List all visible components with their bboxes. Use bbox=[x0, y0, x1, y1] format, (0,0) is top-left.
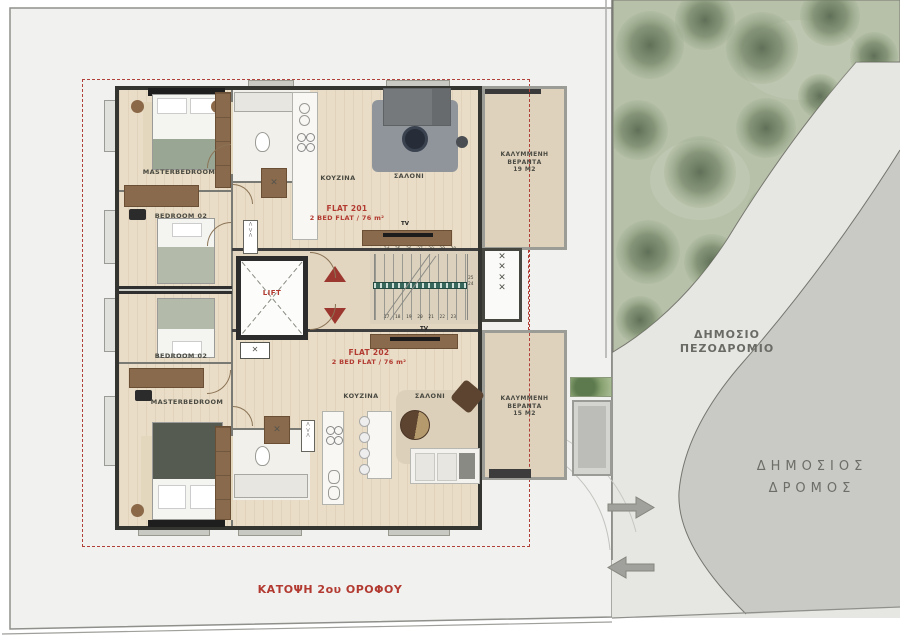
sink bbox=[328, 486, 340, 500]
shaft-hatch: ✕ bbox=[241, 343, 269, 357]
party-wall bbox=[119, 286, 232, 294]
duct-shaft: ⋀⋁⋀ bbox=[301, 420, 315, 452]
tree-canopy bbox=[608, 100, 668, 160]
veranda-201-label: ΚΑΛΥΜΜΕΝΗ ΒΕΡΑΝΤΑ 19 M2 bbox=[485, 151, 564, 174]
blanket bbox=[158, 247, 214, 283]
tv-screen bbox=[383, 233, 433, 237]
veranda-201-line1: ΚΑΛΥΜΜΕΝΗ bbox=[485, 151, 564, 159]
veranda-202-line2: ΒΕΡΑΝΤΑ bbox=[485, 403, 564, 411]
round-table bbox=[400, 410, 430, 440]
blanket bbox=[158, 299, 214, 329]
living-202-label: ΣΑΛΟΝΙ bbox=[400, 392, 460, 400]
stove-burner bbox=[334, 426, 343, 435]
pillow bbox=[157, 98, 187, 114]
master-bed-202 bbox=[152, 422, 223, 520]
sheet-title: ΚΑΤΟΨΗ 2ου ΟΡΟΦΟΥ bbox=[230, 583, 430, 596]
stove-burner bbox=[297, 143, 306, 152]
veranda-flat-201: ΚΑΛΥΜΜΕΝΗ ΒΕΡΑΝΤΑ 19 M2 bbox=[482, 86, 567, 250]
flat-201-name: FLAT 201 bbox=[282, 204, 412, 214]
projection-dashed-line bbox=[528, 250, 529, 330]
stair-break-line bbox=[370, 248, 478, 324]
tv-console-202 bbox=[370, 334, 458, 349]
veranda-flat-202: ΚΑΛΥΜΜΕΝΗ ΒΕΡΑΝΤΑ 15 M2 bbox=[482, 330, 567, 480]
veranda-202-line3: 15 M2 bbox=[485, 410, 564, 418]
veranda-202-label: ΚΑΛΥΜΜΕΝΗ ΒΕΡΑΝΤΑ 15 M2 bbox=[485, 395, 564, 418]
flat-201-label: FLAT 201 2 BED FLAT / 76 m² bbox=[282, 204, 412, 223]
door-arc bbox=[233, 406, 253, 426]
bar-stool bbox=[359, 416, 370, 427]
cabinet-hatch: ✕ bbox=[262, 169, 286, 197]
planter-green bbox=[570, 377, 612, 397]
cabinet-hatch: ✕ bbox=[265, 417, 289, 443]
coffee-table bbox=[402, 126, 428, 152]
flat-202-name: FLAT 202 bbox=[304, 348, 434, 358]
veranda-201-line2: ΒΕΡΑΝΤΑ bbox=[485, 159, 564, 167]
master-201-label: MASTERBEDROOM bbox=[139, 168, 219, 176]
tv-screen bbox=[390, 337, 440, 341]
desk bbox=[129, 368, 204, 388]
duct-shaft: ⋀⋁⋀ bbox=[243, 220, 258, 254]
building-floor-plan: MASTERBEDROOM BEDROOM 02 ✕ ⋀⋁⋀ KOYZINA bbox=[115, 86, 482, 530]
stove-burner bbox=[334, 436, 343, 445]
interior-wall bbox=[119, 362, 232, 364]
tv-202-label: TV bbox=[414, 326, 434, 334]
door-arc bbox=[207, 370, 231, 394]
tree-canopy bbox=[664, 136, 736, 208]
pillow bbox=[190, 485, 218, 509]
stove-burner bbox=[297, 133, 306, 142]
utility-panel-inner bbox=[578, 406, 606, 468]
sofa-202 bbox=[410, 448, 480, 484]
sink bbox=[299, 103, 310, 114]
planter-box bbox=[489, 469, 531, 478]
flat-202-label: FLAT 202 2 BED FLAT / 76 m² bbox=[304, 348, 434, 367]
sink bbox=[299, 115, 310, 126]
stove-burner bbox=[306, 133, 315, 142]
bed-headboard bbox=[148, 520, 225, 527]
tree-canopy bbox=[726, 12, 798, 84]
tree-canopy bbox=[736, 98, 796, 158]
small-shaft: ✕ bbox=[240, 342, 270, 359]
lift-label: LIFT bbox=[241, 289, 303, 297]
sink bbox=[328, 470, 340, 484]
flat-201-spec: 2 BED FLAT / 76 m² bbox=[282, 214, 412, 223]
bathtub bbox=[234, 474, 308, 498]
utility-panel bbox=[572, 400, 612, 476]
storage-cabinet: ✕ bbox=[261, 168, 287, 198]
sidewalk-label-line2: ΠΕΖΟΔΡΟΜΙΟ bbox=[680, 342, 774, 355]
desk bbox=[124, 185, 199, 207]
road-label-line2: ΔΡΟΜΟΣ bbox=[769, 481, 856, 496]
tree-canopy bbox=[616, 11, 684, 79]
sofa-chaise bbox=[432, 89, 450, 125]
duct-shaft: ✕✕✕✕ bbox=[482, 248, 522, 322]
blanket bbox=[153, 423, 222, 479]
bedside-stool bbox=[131, 504, 144, 517]
kitchen-202-label: KOYZINA bbox=[331, 392, 391, 400]
master-202-label: MASTERBEDROOM bbox=[147, 398, 227, 406]
cushion bbox=[415, 453, 435, 481]
door-arc bbox=[233, 184, 253, 204]
living-201-label: ΣΑΛΟΝΙ bbox=[379, 172, 439, 180]
duct-hatch: ✕✕✕✕ bbox=[485, 252, 519, 293]
sidewalk-label-line1: ΔΗΜΟΣΙΟ bbox=[694, 328, 760, 341]
lift-shaft: LIFT bbox=[236, 256, 308, 340]
bedroom02-202-label: BEDROOM 02 bbox=[141, 352, 221, 360]
tree-canopy bbox=[616, 220, 680, 284]
pillow bbox=[158, 485, 186, 509]
toilet bbox=[255, 132, 270, 152]
kitchen-island-202 bbox=[367, 411, 392, 479]
veranda-wall bbox=[485, 89, 541, 94]
lift-cross-lines bbox=[241, 261, 303, 335]
flat-202-spec: 2 BED FLAT / 76 m² bbox=[304, 358, 434, 367]
veranda-201-line3: 19 M2 bbox=[485, 166, 564, 174]
bedroom02-201-label: BEDROOM 02 bbox=[141, 212, 221, 220]
bed-02-201 bbox=[157, 218, 215, 284]
toilet bbox=[255, 446, 270, 466]
side-table bbox=[459, 453, 475, 479]
pouf bbox=[456, 136, 468, 148]
bar-stool bbox=[359, 448, 370, 459]
storage-cabinet: ✕ bbox=[264, 416, 290, 444]
tv-console-201 bbox=[362, 230, 452, 246]
veranda-202-line1: ΚΑΛΥΜΜΕΝΗ bbox=[485, 395, 564, 403]
road-label-line1: ΔΗΜΟΣΙΟΣ bbox=[757, 459, 868, 474]
bed-02-202 bbox=[157, 298, 215, 358]
sofa-201 bbox=[383, 88, 451, 126]
cushion bbox=[437, 453, 457, 481]
wardrobe bbox=[215, 426, 231, 520]
kitchen-counter-202 bbox=[322, 411, 344, 505]
bar-stool bbox=[359, 464, 370, 475]
stove-burner bbox=[306, 143, 315, 152]
bar-stool bbox=[359, 432, 370, 443]
floor-plan-sheet: ΔΗΜΟΣΙΟ ΠΕΖΟΔΡΟΜΙΟ ΔΗΜΟΣΙΟΣ ΔΡΟΜΟΣ ΚΑΛΥΜ… bbox=[0, 0, 900, 636]
kitchen-201-label: KOYZINA bbox=[308, 174, 368, 182]
bedside-stool bbox=[131, 100, 144, 113]
pillow bbox=[172, 223, 202, 237]
